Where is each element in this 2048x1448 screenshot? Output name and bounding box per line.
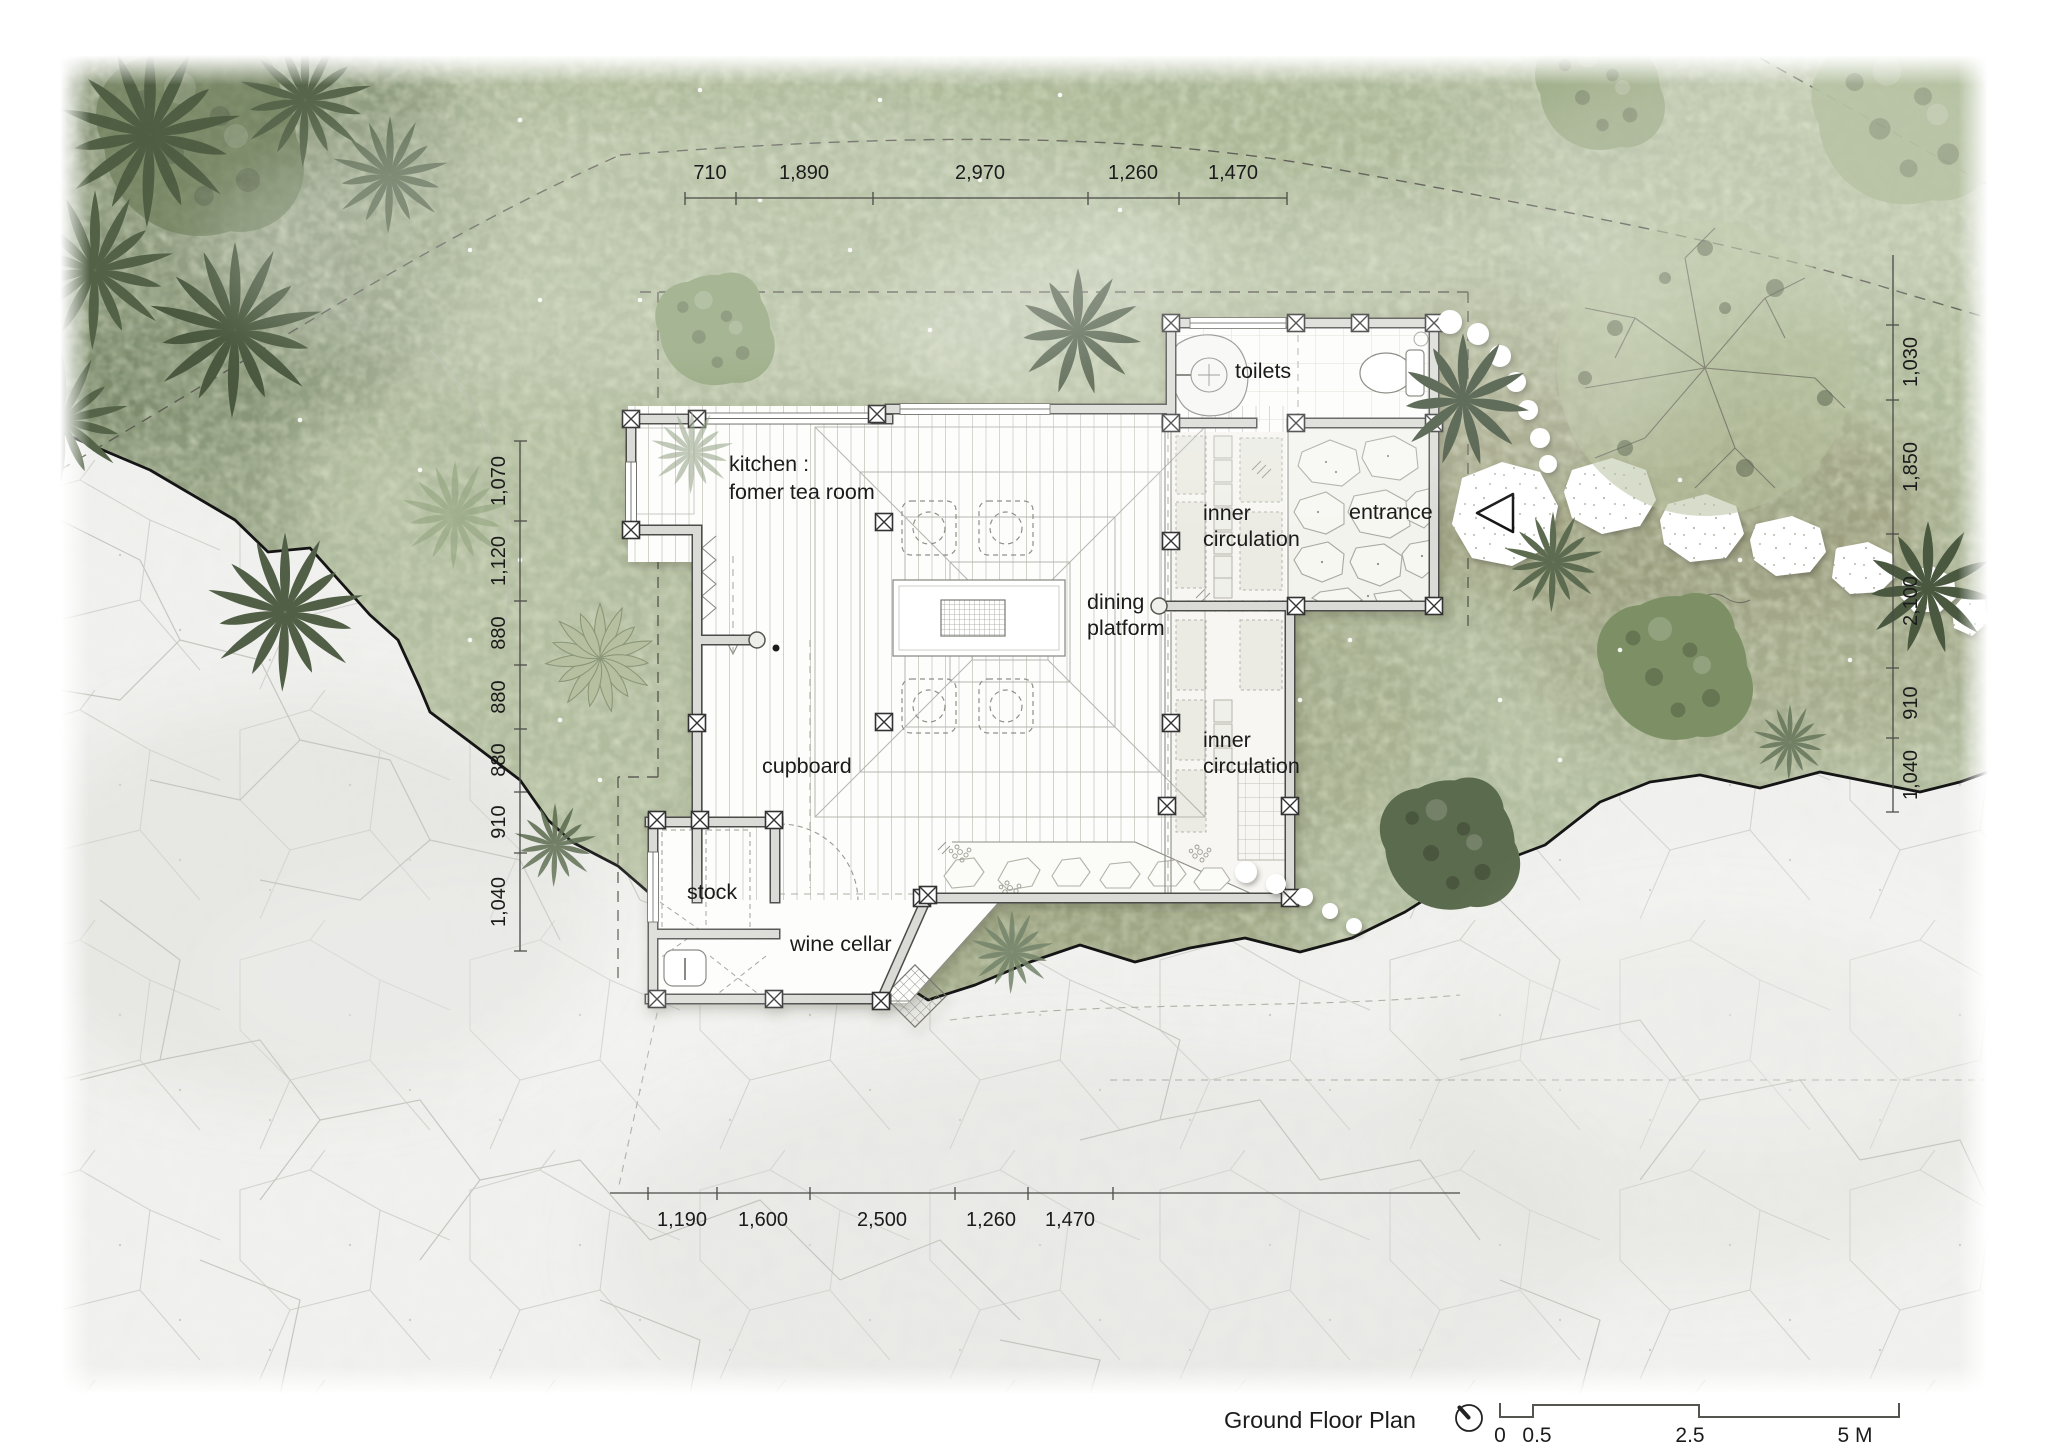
site-ground [0,0,2048,1448]
floor-plan-page: toilets kitchen : fomer tea room inner c… [0,0,2048,1448]
dim-top-4: 1,470 [1208,162,1258,184]
scale-label-0: 0 [1494,1424,1506,1447]
dining-table [893,580,1065,656]
footer: Ground Floor Plan 0 0.5 2.5 5 M [1224,1403,1899,1447]
dim-bottom-3: 1,260 [966,1209,1016,1231]
scale-label-5m: 5 M [1837,1424,1872,1447]
room-label-wine-cellar: wine cellar [789,932,892,956]
table-grill [941,600,1005,636]
dim-left-4: 880 [488,743,510,776]
dim-left-5: 910 [488,805,510,838]
dim-left-2: 880 [488,616,510,649]
dim-left-6: 1,040 [488,877,510,927]
dim-top-3: 1,260 [1108,162,1158,184]
north-arrow-icon [1456,1405,1482,1431]
scale-label-05: 0.5 [1522,1424,1551,1447]
room-label-toilets: toilets [1235,359,1291,383]
room-label-kitchen-line2: fomer tea room [729,480,875,504]
room-label-inner-circulation-2b: circulation [1203,754,1300,778]
dim-right-3: 910 [1900,686,1922,719]
dim-bottom-2: 2,500 [857,1209,907,1231]
room-label-stock: stock [687,880,737,904]
door-knob [1151,598,1167,614]
room-label-cupboard: cupboard [762,754,852,778]
room-label-inner-circulation-2a: inner [1203,728,1251,752]
room-label-dining-line2: platform [1087,616,1165,640]
dim-right-4: 1,040 [1900,750,1922,800]
dim-top-1: 1,890 [779,162,829,184]
room-label-dining-line1: dining [1087,590,1144,614]
room-label-entrance: entrance [1349,500,1433,524]
dim-left-1: 1,120 [488,536,510,586]
dim-top-2: 2,970 [955,162,1005,184]
plan-title: Ground Floor Plan [1224,1407,1416,1433]
dim-bottom-0: 1,190 [657,1209,707,1231]
dim-right-2: 2,100 [1900,576,1922,626]
dim-right-0: 1,030 [1900,337,1922,387]
dim-top-0: 710 [693,162,726,184]
door-knob [749,632,765,648]
scale-label-25: 2.5 [1675,1424,1704,1447]
scale-bar: 0 0.5 2.5 5 M [1494,1403,1899,1447]
room-label-kitchen-line1: kitchen : [729,452,809,476]
dim-right-1: 1,850 [1900,442,1922,492]
dim-bottom-4: 1,470 [1045,1209,1095,1231]
floor-plan-canvas: toilets kitchen : fomer tea room inner c… [0,0,2048,1448]
dim-left-0: 1,070 [488,456,510,506]
dim-left-3: 880 [488,680,510,713]
dim-bottom-1: 1,600 [738,1209,788,1231]
room-label-inner-circulation-1a: inner [1203,501,1251,525]
room-label-inner-circulation-1b: circulation [1203,527,1300,551]
